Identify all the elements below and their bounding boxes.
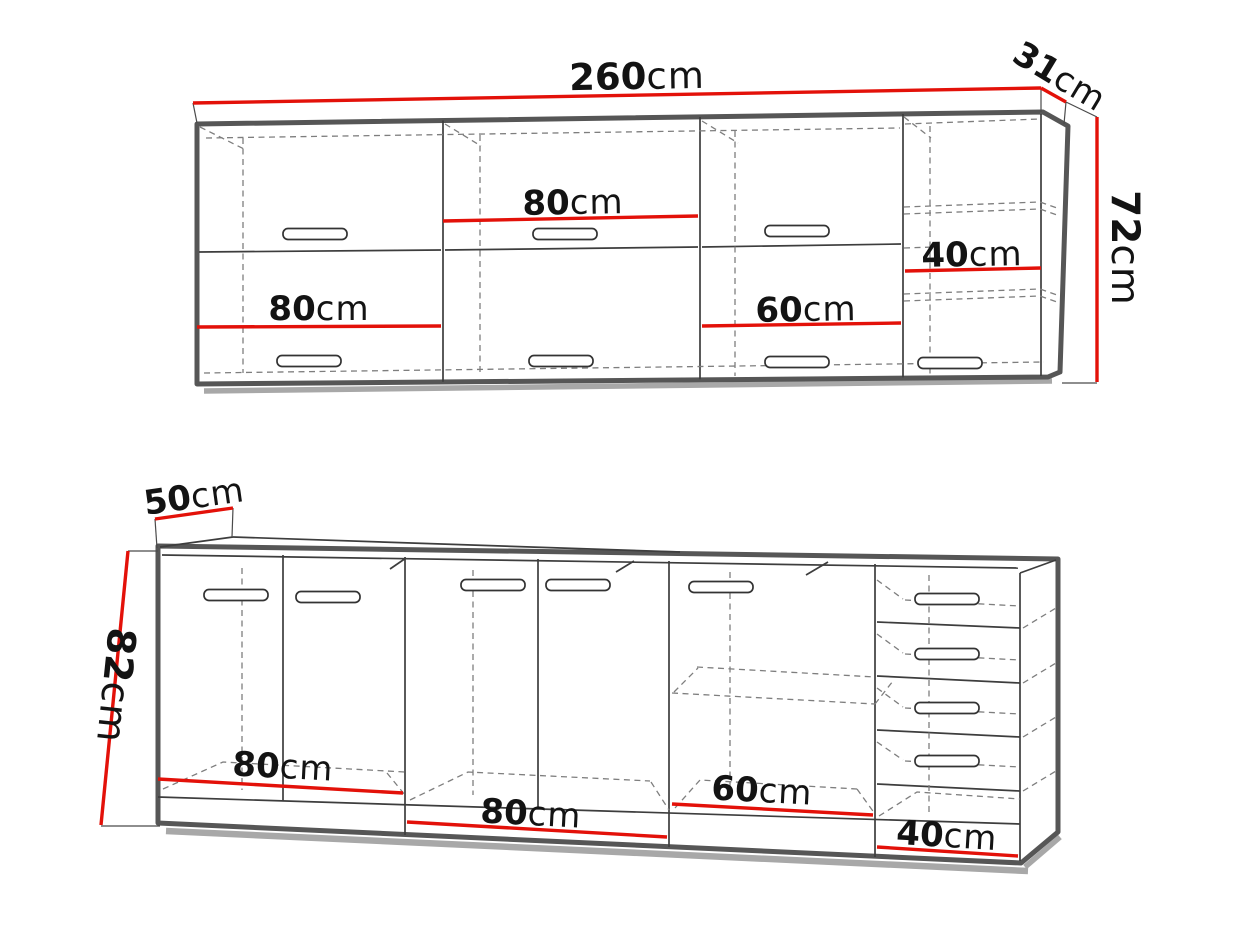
- dim-label-section-1: 80cm: [231, 744, 334, 789]
- dim-label-height: 72cm: [1102, 190, 1147, 306]
- drawer-handle: [915, 756, 979, 767]
- door-handle: [529, 356, 593, 367]
- door-handle: [283, 229, 347, 240]
- door-handle: [461, 580, 525, 591]
- dim-label-section-4: 40cm: [895, 813, 998, 859]
- door-handle: [689, 582, 753, 593]
- door-handle: [765, 226, 829, 237]
- door-handle: [296, 592, 360, 603]
- drawer-handle: [915, 703, 979, 714]
- diagram-canvas: 260cm 31cm 72cm 80cm 80cm 60cm 40cm: [0, 0, 1237, 928]
- dim-label-section-3: 60cm: [710, 768, 813, 813]
- kitchen-cabinet-dimension-diagram: 260cm 31cm 72cm 80cm 80cm 60cm 40cm: [0, 0, 1237, 928]
- door-handle: [204, 590, 268, 601]
- dim-label-total-width: 260cm: [569, 54, 705, 99]
- drawer-handle: [915, 649, 979, 660]
- dim-label-section-2: 80cm: [522, 182, 624, 224]
- dim-label-section-1: 80cm: [268, 289, 369, 329]
- door-handle: [765, 357, 829, 368]
- door-handle: [277, 356, 341, 367]
- drawer-handle: [915, 594, 979, 605]
- dim-label-section-4: 40cm: [921, 234, 1023, 276]
- door-handle: [533, 229, 597, 240]
- door-handle: [546, 580, 610, 591]
- dim-label-section-3: 60cm: [755, 289, 857, 331]
- dim-label-section-2: 80cm: [479, 791, 582, 836]
- door-handle: [918, 358, 982, 369]
